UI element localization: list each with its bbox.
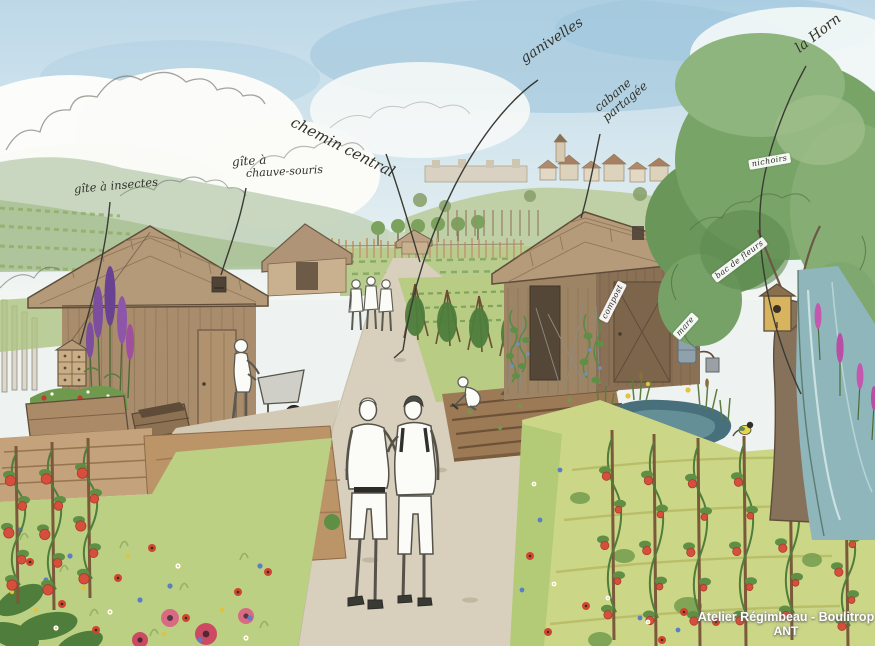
garden-illustration	[0, 0, 875, 646]
shed-doorway	[530, 286, 560, 380]
pergola-bucket	[700, 352, 719, 372]
bird-on-stake	[733, 422, 753, 436]
bat-box	[212, 277, 226, 292]
illustration-canvas: chemin central ganivelles cabane partagé…	[0, 0, 875, 646]
river	[796, 266, 875, 540]
credit-line2: ANT	[692, 624, 875, 638]
credit-line1: Atelier Régimbeau - Boulitrop	[692, 610, 875, 624]
credit-block: Atelier Régimbeau - Boulitrop ANT	[692, 610, 875, 638]
